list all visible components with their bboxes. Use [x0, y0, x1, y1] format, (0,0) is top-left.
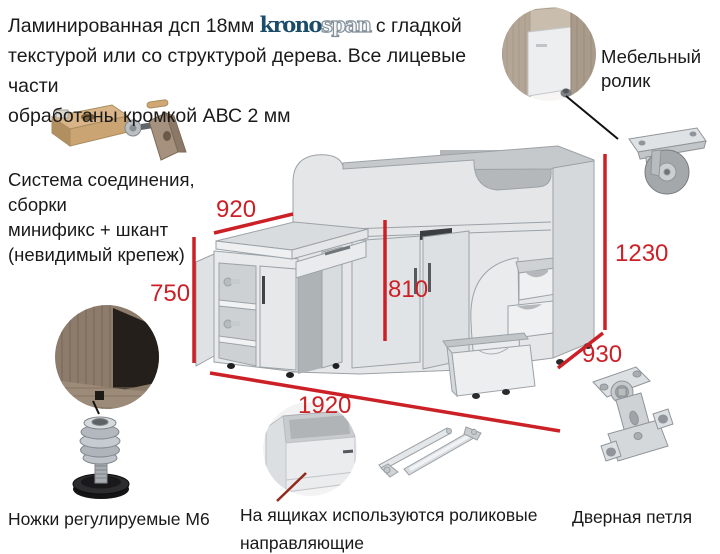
- furniture-roller-label: Мебельный ролик: [601, 45, 701, 93]
- material-description-line2: текстурой или со структурой дерева. Все …: [8, 41, 508, 101]
- connection-system-line4: (невидимый крепеж): [8, 242, 195, 267]
- connection-system-label: Система соединения, сборки минификс + шк…: [8, 167, 195, 267]
- dim-label-desk-width: 920: [216, 196, 256, 224]
- connection-system-line2: сборки: [8, 192, 195, 217]
- roller-pointer-line: [566, 96, 618, 139]
- infographic-canvas: Ламинированная дсп 18мм kronospan с глад…: [0, 0, 720, 554]
- drawer-slides-label-line2: направляющие: [240, 529, 537, 554]
- door-hinge-label: Дверная петля: [572, 507, 692, 528]
- concealed-door-hinge-photo: [593, 367, 673, 461]
- drawer-slides-label-line1: На ящиках используются роликовые: [240, 501, 537, 529]
- material-description-line3: обработаны кромкой АВС 2 мм: [8, 101, 508, 131]
- adjustable-threaded-foot-photo: [73, 417, 129, 499]
- material-text-after-logo: с гладкой: [370, 15, 461, 37]
- kronospan-logo-outline: span: [321, 12, 370, 37]
- dim-label-depth: 930: [582, 341, 622, 369]
- caster-wheel-photo: [629, 128, 706, 194]
- furniture-roller-label-line2: ролик: [601, 69, 701, 93]
- furniture-roller-label-line1: Мебельный: [601, 45, 701, 69]
- material-text-before-logo: Ламинированная дсп 18мм: [8, 15, 260, 37]
- cabinet-bottom-corner-photo: [55, 305, 161, 411]
- dim-label-desk-height: 750: [150, 280, 190, 308]
- dim-label-overall-width: 1920: [298, 392, 351, 420]
- connection-system-line1: Система соединения,: [8, 167, 195, 192]
- drawer-with-furniture-roller-photo: [500, 3, 600, 105]
- loft-bed-with-desk-line-drawing: [196, 146, 594, 399]
- material-description-line1: Ламинированная дсп 18мм kronospan с глад…: [8, 10, 508, 41]
- kronospan-logo: kronospan: [260, 12, 371, 37]
- dim-label-overall-height: 1230: [615, 240, 668, 268]
- material-description: Ламинированная дсп 18мм kronospan с глад…: [8, 10, 508, 131]
- connection-system-line3: минификс + шкант: [8, 217, 195, 242]
- roller-drawer-slides-photo: [379, 427, 481, 477]
- kronospan-logo-solid: krono: [260, 12, 321, 37]
- adjustable-feet-label: Ножки регулируемые М6: [8, 509, 210, 530]
- dim-label-under-bed-height: 810: [388, 276, 428, 304]
- drawer-slides-label: На ящиках используются роликовые направл…: [240, 501, 537, 554]
